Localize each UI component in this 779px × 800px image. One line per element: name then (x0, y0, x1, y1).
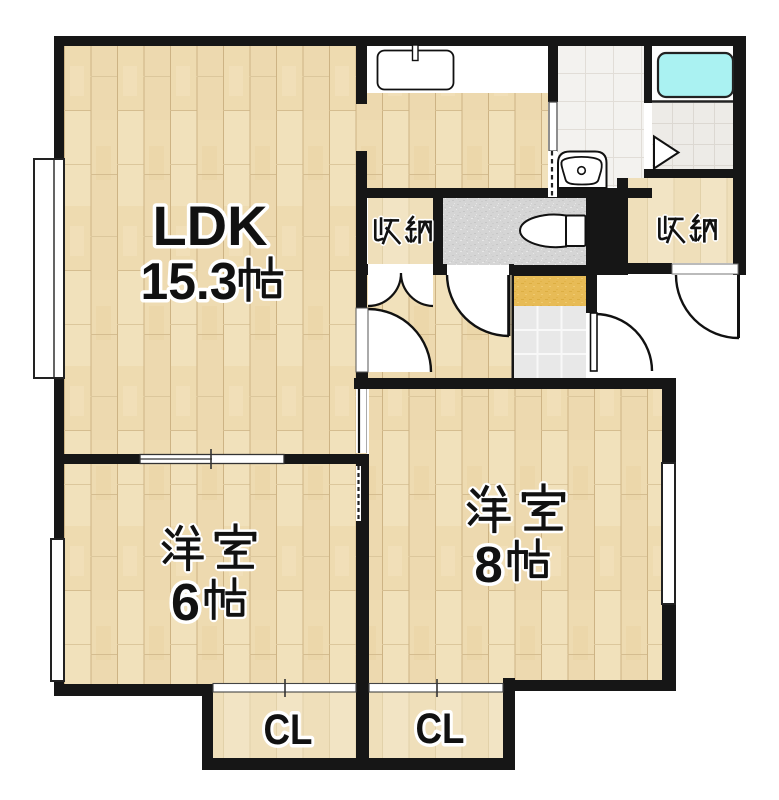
svg-text:LDK: LDK (152, 194, 267, 257)
svg-text:8: 8 (474, 536, 502, 593)
svg-text:CL: CL (416, 705, 465, 753)
svg-text:15.3: 15.3 (141, 253, 238, 311)
svg-text:6: 6 (171, 574, 200, 632)
svg-text:CL: CL (264, 706, 313, 754)
